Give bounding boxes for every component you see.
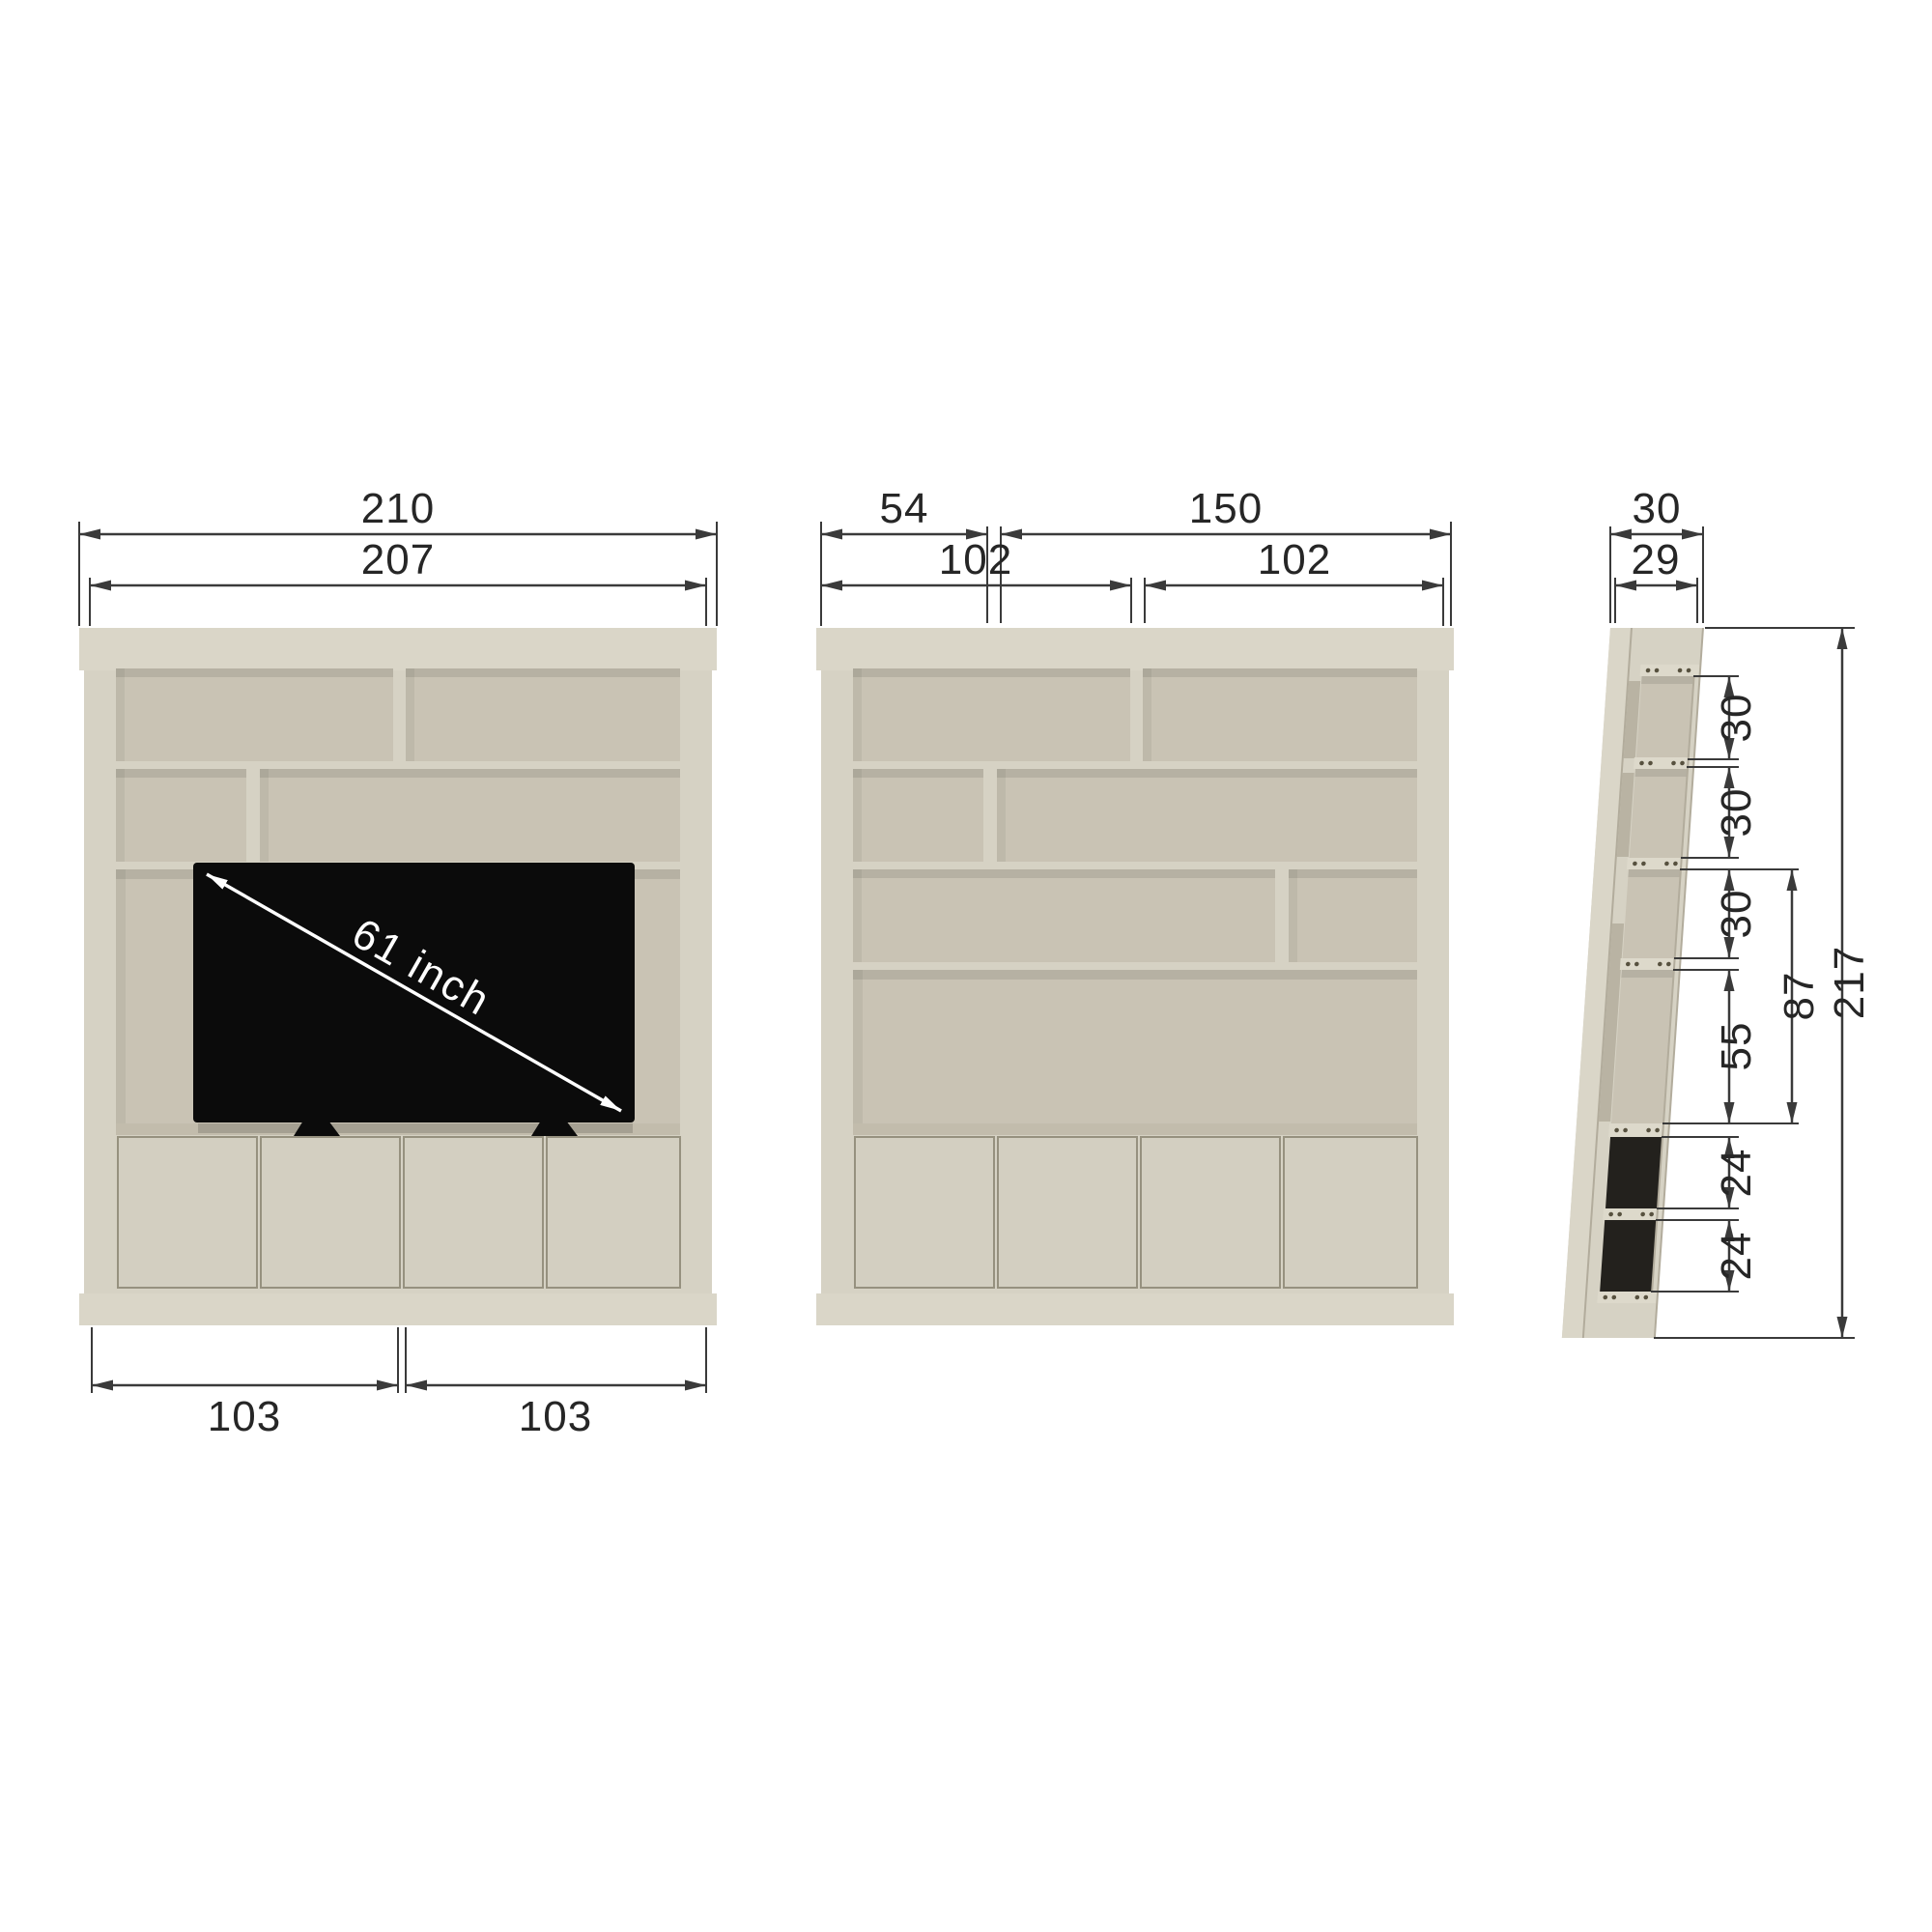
- dim-label-depth-inner: 29: [1632, 536, 1681, 583]
- dim-label-inner-width: 207: [361, 536, 435, 583]
- dim-label-row3: 30: [1713, 890, 1760, 939]
- side-view: 30 29 30 30 30 55 24 24 87 217: [1562, 485, 1873, 1338]
- dim-label-outer-width: 210: [361, 485, 435, 532]
- dim-label-top-shelf-right: 150: [1189, 485, 1263, 532]
- dim-label-doors-left: 102: [939, 536, 1012, 583]
- dim-label-total-height: 217: [1826, 946, 1873, 1019]
- door-fronts: [855, 1137, 1417, 1288]
- cabinet-plinth: [816, 1293, 1454, 1325]
- cabinet-crown: [816, 628, 1454, 670]
- front-view-open: 54 150 102 102: [816, 485, 1454, 1325]
- dim-label-top-shelf-left: 54: [880, 485, 929, 532]
- dim-label-doors-right: 102: [1258, 536, 1331, 583]
- tv-shelf-surface: [853, 1123, 1417, 1135]
- cabinet-plinth: [79, 1293, 717, 1325]
- technical-drawing: 61 inch 210 207 103 103 54 150 102 102: [0, 0, 1932, 1932]
- dim-label-box1: 24: [1713, 1149, 1760, 1198]
- dim-label-row2: 30: [1713, 788, 1760, 838]
- door-fronts: [118, 1137, 680, 1288]
- dim-label-door-pair-left: 103: [208, 1393, 281, 1440]
- cabinet-crown: [79, 628, 717, 670]
- dim-label-box2: 24: [1713, 1232, 1760, 1281]
- dim-label-tv-opening: 87: [1776, 972, 1823, 1021]
- front-view-with-tv: 61 inch 210 207 103 103: [79, 485, 717, 1440]
- drawing-page: 61 inch 210 207 103 103 54 150 102 102: [0, 0, 1932, 1932]
- dim-label-depth-outer: 30: [1633, 485, 1682, 532]
- dim-label-row1: 30: [1713, 694, 1760, 743]
- dim-label-open-section: 55: [1713, 1022, 1760, 1071]
- front-open-extension-lines: [821, 522, 1451, 626]
- side-body-perspective: [1562, 628, 1703, 1338]
- dim-label-door-pair-right: 103: [519, 1393, 592, 1440]
